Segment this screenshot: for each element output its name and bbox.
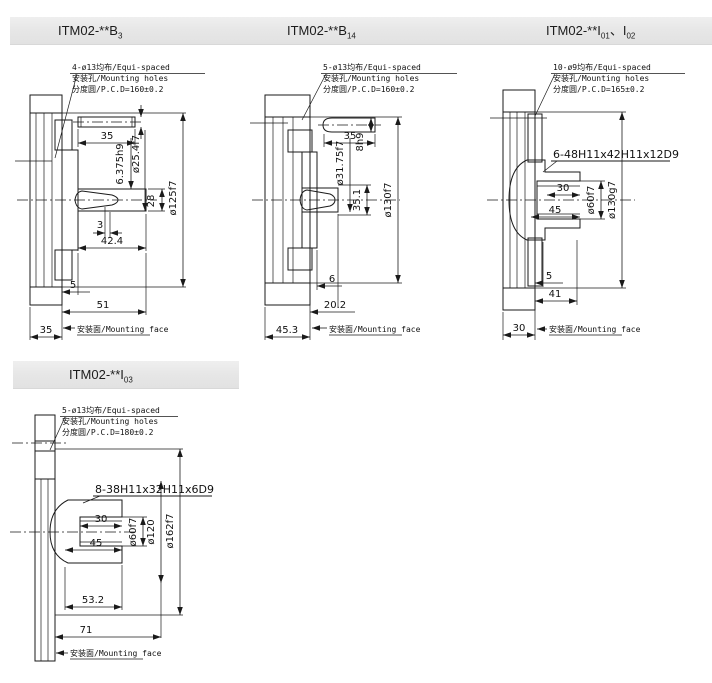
note-line-2: 安装孔/Mounting holes <box>323 73 419 83</box>
mounting-face-label: 安装面/Mounting face <box>329 324 421 334</box>
hatch-hub-bottom <box>55 250 72 280</box>
dim-flange-thickness: 45.3 <box>276 325 298 336</box>
dim-key-width: 8h9 <box>355 132 366 151</box>
dim-spline-depth: 30 <box>557 183 570 194</box>
dim-pilot-dia: ø130f7 <box>383 182 394 217</box>
section-drawing-i03: 30 45 ø60f7 ø120 ø162f7 53.2 71 安装面/Moun… <box>10 393 260 683</box>
section-drawing-b14: 35 8h9 ø31.75f7 35.1 ø130f7 6 20.2 45.3 … <box>250 50 472 350</box>
note-line-2: 安装孔/Mounting holes <box>72 73 168 83</box>
title-subscript: 14 <box>347 32 356 41</box>
key-detail <box>323 118 375 132</box>
title-text: ITM02-**B <box>287 23 347 38</box>
note-line-2: 安装孔/Mounting holes <box>553 73 649 83</box>
dim-step: 6 <box>329 274 335 285</box>
note-line-1: 10-ø9均布/Equi-spaced <box>553 62 651 72</box>
hatch-hub-bottom <box>288 248 312 270</box>
mounting-face-label: 安装面/Mounting face <box>77 324 169 334</box>
dim-bore-depth: 45 <box>90 538 103 549</box>
hatch-rim-top <box>30 95 62 113</box>
dim-gap: 3 <box>97 220 103 231</box>
leader-line <box>55 74 77 158</box>
spline-spec-label: 6-48H11x42H11x12D9 <box>553 148 679 161</box>
dim-key-height: 6.375h9 <box>115 143 126 184</box>
dimensions: 30 45 ø60f7 ø130g7 5 41 30 安装面/Mounting … <box>503 112 641 340</box>
dim-hub-dia: ø120 <box>146 519 157 544</box>
dim-hub-length: 53.2 <box>82 595 104 606</box>
spline-hub-section <box>50 500 122 563</box>
hatch-rim-top <box>503 90 535 112</box>
title-subscript: 3 <box>118 32 122 41</box>
dim-hub-length: 51 <box>97 300 110 311</box>
dim-bore-dia: ø60f7 <box>586 186 597 215</box>
spline-spec-label: 8-38H11x32H11x6D9 <box>95 483 214 496</box>
spline-callout: 6-48H11x42H11x12D9 <box>543 148 679 172</box>
mounting-holes-note: 5-ø13均布/Equi-spaced 安装孔/Mounting holes 分… <box>50 405 178 450</box>
dimensions: 30 45 ø60f7 ø120 ø162f7 53.2 71 安装面/Moun… <box>55 449 183 659</box>
dim-shaft-length: 42.4 <box>101 236 123 247</box>
mounting-face-label: 安装面/Mounting face <box>549 324 641 334</box>
title-text: ITM02-**I <box>69 367 124 382</box>
dim-step: 5 <box>546 271 552 282</box>
title-subscript: 01 <box>601 32 610 41</box>
flange-section <box>10 415 138 661</box>
drawing-sheet: ITM02-**B3 ITM02-**B14 ITM02-**I01、I02 I… <box>0 0 712 683</box>
note-line-1: 5-ø13均布/Equi-spaced <box>323 62 421 72</box>
mounting-holes-note: 10-ø9均布/Equi-spaced 安装孔/Mounting holes 分… <box>535 62 685 116</box>
mounting-holes-note: 5-ø13均布/Equi-spaced 安装孔/Mounting holes 分… <box>302 62 457 120</box>
title-text: ITM02-**I <box>546 23 601 38</box>
title-subscript: 03 <box>124 376 133 385</box>
dim-spline-depth: 30 <box>95 514 108 525</box>
title-subscript: 02 <box>626 32 635 41</box>
note-line-1: 5-ø13均布/Equi-spaced <box>62 405 160 415</box>
section-drawing-i01-i02: 30 45 ø60f7 ø130g7 5 41 30 安装面/Mounting … <box>485 50 707 350</box>
note-line-3: 分度圆/P.C.D=160±0.2 <box>323 84 415 94</box>
panel-title-b14: ITM02-**B14 <box>245 17 509 45</box>
note-line-2: 安装孔/Mounting holes <box>62 416 158 426</box>
dim-flange-thickness: 30 <box>513 323 526 334</box>
panel-title-b3: ITM02-**B3 <box>10 17 280 45</box>
dim-pilot-dia: ø125f7 <box>168 180 179 215</box>
hatch-hub-top <box>288 130 312 152</box>
hatch-rim-top <box>265 95 310 117</box>
flange-section <box>250 95 400 305</box>
dim-total-length: 71 <box>80 625 93 636</box>
dim-pilot-dia: ø130g7 <box>607 181 618 219</box>
dim-bore-depth: 45 <box>549 205 562 216</box>
dim-bore-dia: 35.1 <box>352 189 363 211</box>
dim-shaft-length: 20.2 <box>324 300 346 311</box>
hatch-rim-bottom <box>30 287 62 305</box>
title-text: ITM02-**B <box>58 23 118 38</box>
dimensions: 35 6.375h9 ø25.4f7 28 ø125f7 3 42.4 5 51 <box>30 113 186 340</box>
flange-section <box>15 95 157 305</box>
dim-flange-thickness: 35 <box>40 325 53 336</box>
dim-key-length: 35 <box>101 131 114 142</box>
dim-pilot-dia: ø162f7 <box>165 513 176 548</box>
dim-shaft-end-dia: 28 <box>146 195 157 208</box>
note-line-3: 分度圆/P.C.D=180±0.2 <box>62 427 154 437</box>
dim-bore-dia: ø60f7 <box>128 518 139 547</box>
leader-line <box>302 74 326 120</box>
note-line-1: 4-ø13均布/Equi-spaced <box>72 62 170 72</box>
dim-shaft-dia: ø31.75f7 <box>335 141 346 186</box>
panel-title-i03: ITM02-**I03 <box>13 361 239 389</box>
leader-line <box>535 74 555 116</box>
hatch-rim-top <box>35 415 55 441</box>
mounting-face-label: 安装面/Mounting face <box>70 648 162 658</box>
dim-shaft-dia: ø25.4f7 <box>131 135 142 173</box>
section-drawing-b3: 35 6.375h9 ø25.4f7 28 ø125f7 3 42.4 5 51 <box>15 50 235 350</box>
hatch-rim-bottom <box>503 288 535 310</box>
dim-hub-length: 41 <box>549 289 562 300</box>
mounting-holes-note: 4-ø13均布/Equi-spaced 安装孔/Mounting holes 分… <box>55 62 205 158</box>
note-line-3: 分度圆/P.C.D=165±0.2 <box>553 84 645 94</box>
dim-step: 5 <box>70 280 76 291</box>
hatch-rim-bottom <box>265 283 310 305</box>
panel-title-i01-i02: ITM02-**I01、I02 <box>484 17 712 45</box>
hatch-rim-bottom <box>35 451 55 479</box>
note-line-3: 分度圆/P.C.D=160±0.2 <box>72 84 164 94</box>
